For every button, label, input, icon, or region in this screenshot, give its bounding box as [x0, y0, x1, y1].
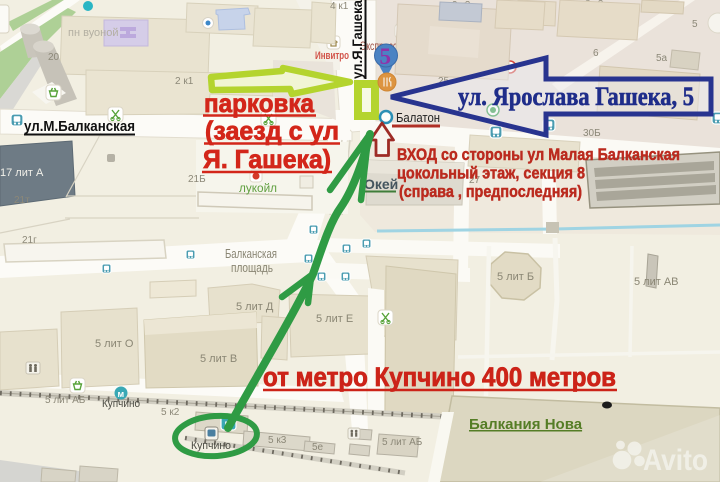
svg-text:парковка: парковка — [204, 88, 314, 118]
svg-text:ул.М.Балканская: ул.М.Балканская — [24, 118, 135, 135]
svg-text:5 лит АБ: 5 лит АБ — [382, 437, 423, 448]
svg-text:Балатон: Балатон — [396, 110, 440, 125]
svg-text:от метро Купчино 400 метров: от метро Купчино 400 метров — [263, 362, 616, 392]
svg-text:21г: 21г — [22, 235, 37, 246]
svg-text:5 лит Д: 5 лит Д — [236, 301, 274, 313]
svg-text:ул. Ярослава Гашека, 5: ул. Ярослава Гашека, 5 — [458, 82, 694, 111]
svg-text:5 лит АБ: 5 лит АБ — [45, 395, 86, 406]
svg-text:пн вуоной: пн вуоной — [68, 27, 119, 39]
svg-text:Балканская: Балканская — [225, 247, 277, 261]
svg-text:Окей: Окей — [364, 176, 398, 192]
svg-text:ВХОД со стороны ул Малая Балка: ВХОД со стороны ул Малая Балканская — [397, 145, 680, 164]
svg-text:(заезд с ул: (заезд с ул — [205, 116, 339, 146]
svg-text:цокольный этаж, секция 8: цокольный этаж, секция 8 — [397, 164, 585, 183]
svg-text:Инвитро: Инвитро — [315, 50, 349, 62]
svg-text:площадь: площадь — [231, 261, 273, 275]
svg-text:5е: 5е — [312, 442, 324, 453]
svg-text:5 лит Е: 5 лит Е — [316, 313, 353, 325]
svg-text:м: м — [118, 389, 125, 399]
svg-text:5а: 5а — [656, 53, 668, 64]
svg-text:5 лит Б: 5 лит Б — [497, 271, 534, 283]
svg-text:лукойл: лукойл — [239, 181, 277, 195]
svg-text:5 к2: 5 к2 — [161, 407, 180, 418]
svg-text:5 лит В: 5 лит В — [200, 353, 237, 365]
svg-text:Купчино: Купчино — [191, 440, 231, 452]
svg-text:21т: 21т — [14, 195, 30, 206]
svg-text:(справа , предпоследняя): (справа , предпоследняя) — [399, 182, 582, 201]
svg-text:5: 5 — [380, 44, 392, 69]
svg-text:Балкания Нова: Балкания Нова — [469, 416, 583, 433]
svg-text:Купчино: Купчино — [102, 398, 140, 410]
svg-text:21Б: 21Б — [188, 174, 206, 185]
svg-text:5 лит АВ: 5 лит АВ — [634, 276, 679, 288]
svg-text:6: 6 — [593, 48, 599, 59]
svg-text:ул.Я.Гашека: ул.Я.Гашека — [350, 0, 365, 79]
svg-text:Avito: Avito — [643, 444, 708, 477]
svg-text:5: 5 — [692, 19, 698, 30]
svg-text:5 к3: 5 к3 — [268, 435, 287, 446]
svg-text:17 лит А: 17 лит А — [0, 167, 44, 179]
svg-text:20: 20 — [48, 52, 60, 63]
svg-text:5 лит О: 5 лит О — [95, 338, 134, 350]
svg-text:4 к1: 4 к1 — [330, 1, 349, 12]
svg-text:2 к1: 2 к1 — [175, 76, 194, 87]
svg-text:Я. Гашека): Я. Гашека) — [203, 144, 331, 174]
svg-text:30Б: 30Б — [583, 128, 601, 139]
